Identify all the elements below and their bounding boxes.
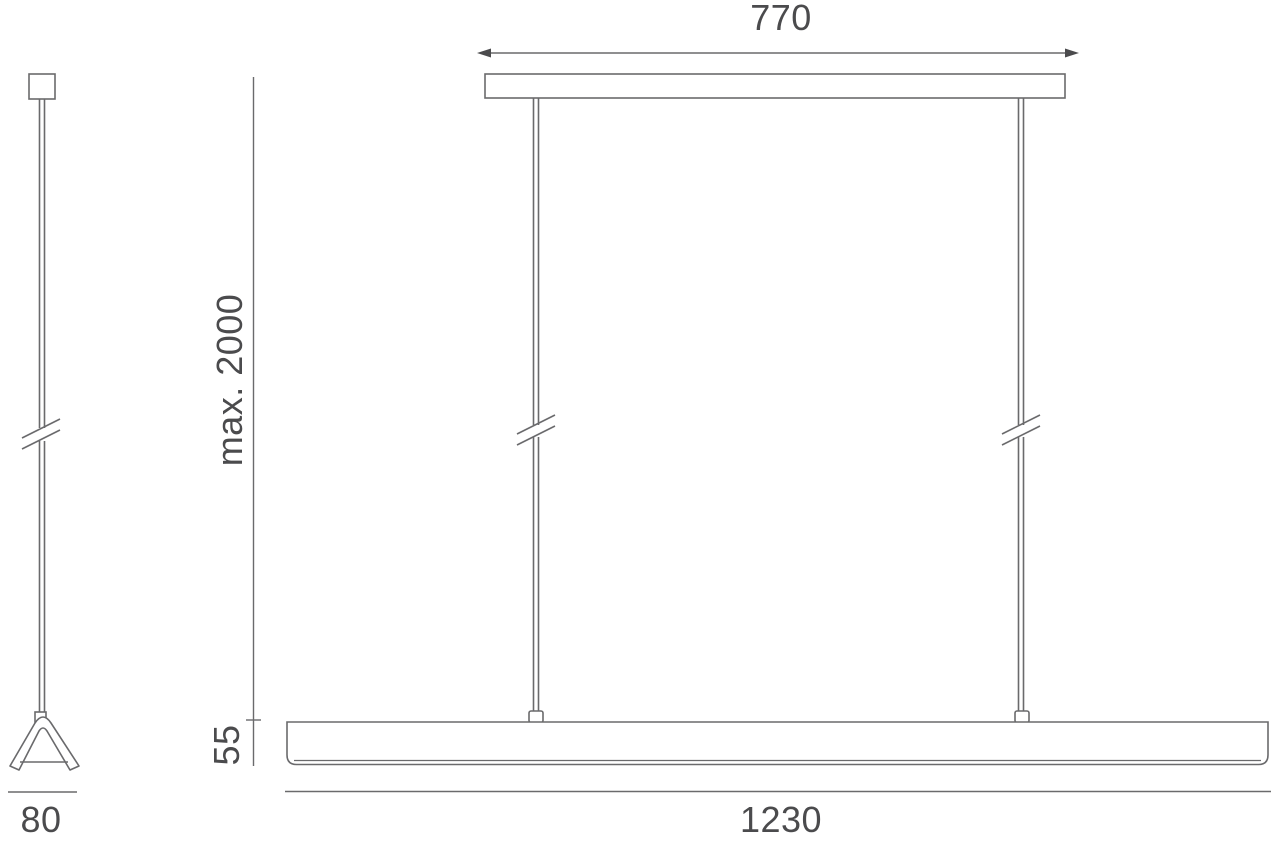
side-suspension-cable	[40, 99, 45, 712]
dim-label-body-height: 55	[207, 724, 247, 765]
left-cable-break-icon	[517, 415, 555, 445]
side-lamp-profile	[10, 717, 79, 770]
left-suspension-cable	[534, 98, 539, 712]
side-view-group	[8, 74, 79, 792]
side-cable-break-icon	[22, 419, 60, 449]
right-cable-grip	[1015, 711, 1029, 723]
arrow-left-icon	[477, 49, 491, 58]
dim-label-canopy-width: 770	[750, 0, 812, 38]
dimension-drawing: 770 max. 2000 55 1230 80	[0, 0, 1274, 841]
side-ceiling-mount	[29, 74, 55, 99]
front-view-group	[246, 49, 1271, 792]
dim-label-body-length: 1230	[740, 800, 822, 840]
dim-label-profile-width: 80	[20, 800, 61, 840]
right-cable-break-icon	[1002, 415, 1040, 445]
canopy	[485, 74, 1065, 98]
arrow-right-icon	[1065, 49, 1079, 58]
right-suspension-cable	[1019, 98, 1024, 712]
left-cable-grip	[529, 711, 543, 723]
canopy-width-arrow	[477, 49, 1079, 58]
lamp-body	[287, 722, 1268, 765]
dim-label-max-suspension-height: max. 2000	[210, 294, 250, 467]
technical-drawing-canvas	[0, 0, 1274, 841]
